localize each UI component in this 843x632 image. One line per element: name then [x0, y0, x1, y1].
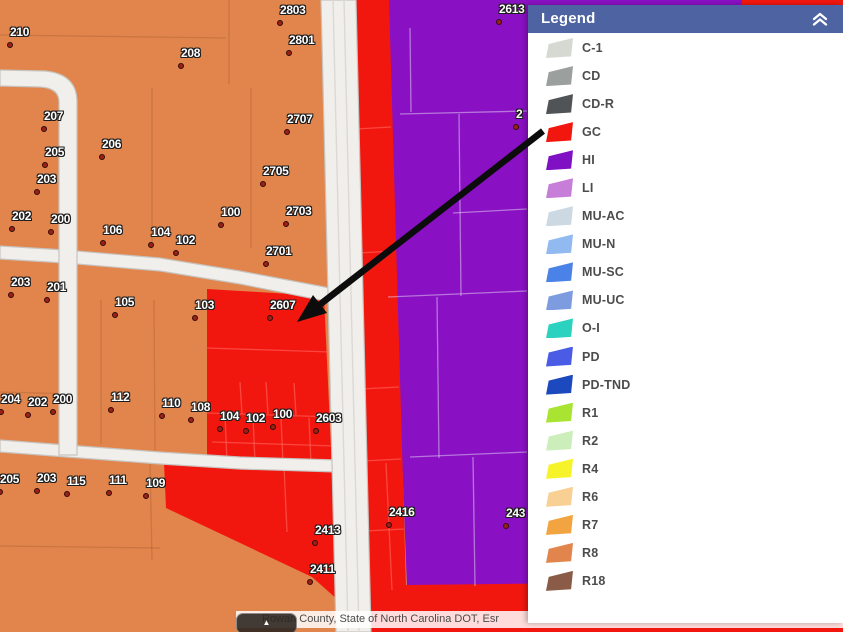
legend-item-label: R7: [582, 518, 598, 532]
chevron-double-up-icon: [814, 14, 826, 25]
legend-swatch: [546, 66, 573, 86]
legend-header: Legend: [528, 5, 843, 33]
legend-swatch: [546, 403, 573, 423]
legend-swatch: [546, 431, 573, 451]
legend-item: R8: [528, 539, 843, 567]
legend-item: R4: [528, 455, 843, 483]
legend-item: PD: [528, 343, 843, 371]
legend-list: C-1CDCD-RGCHILIMU-ACMU-NMU-SCMU-UCO-IPDP…: [528, 33, 843, 595]
legend-item-label: R2: [582, 434, 598, 448]
legend-swatch: [546, 178, 573, 198]
legend-item: R7: [528, 511, 843, 539]
legend-item-label: R1: [582, 406, 598, 420]
legend-swatch: [546, 571, 573, 591]
legend-item: R18: [528, 567, 843, 595]
legend-item-label: O-I: [582, 321, 600, 335]
legend-swatch: [546, 543, 573, 563]
legend-swatch: [546, 375, 573, 395]
legend-item: CD: [528, 62, 843, 90]
legend-swatch: [546, 150, 573, 170]
attribution-arrow-icon: ▲: [263, 618, 271, 627]
legend-item: HI: [528, 146, 843, 174]
legend-item-label: R6: [582, 490, 598, 504]
legend-item: MU-N: [528, 230, 843, 258]
legend-collapse-button[interactable]: [811, 12, 829, 26]
legend-item: CD-R: [528, 90, 843, 118]
legend-swatch: [546, 234, 573, 254]
legend-item-label: MU-SC: [582, 265, 624, 279]
attribution-expand-button[interactable]: ▲: [236, 613, 297, 632]
legend-title: Legend: [541, 10, 596, 27]
legend-item: PD-TND: [528, 371, 843, 399]
legend-item-label: GC: [582, 125, 601, 139]
legend-item-label: R4: [582, 462, 598, 476]
legend-swatch: [546, 459, 573, 479]
legend-item-label: LI: [582, 181, 594, 195]
legend-item-label: PD-TND: [582, 378, 630, 392]
legend-item-label: C-1: [582, 41, 603, 55]
legend-item-label: R8: [582, 546, 598, 560]
legend-item-label: PD: [582, 350, 600, 364]
legend-swatch: [546, 94, 573, 114]
legend-swatch: [546, 487, 573, 507]
legend-swatch: [546, 347, 573, 367]
legend-swatch: [546, 515, 573, 535]
legend-swatch: [546, 38, 573, 58]
legend-item: GC: [528, 118, 843, 146]
map-viewport: 2102082803280127072705207206205203202200…: [0, 0, 843, 632]
legend-item-label: CD-R: [582, 97, 614, 111]
legend-item: MU-AC: [528, 202, 843, 230]
legend-item: LI: [528, 174, 843, 202]
legend-swatch: [546, 318, 573, 338]
legend-swatch: [546, 206, 573, 226]
legend-swatch: [546, 290, 573, 310]
legend-item-label: MU-UC: [582, 293, 625, 307]
legend-item: R2: [528, 427, 843, 455]
legend-item-label: MU-N: [582, 237, 615, 251]
legend-item-label: MU-AC: [582, 209, 625, 223]
legend-item: MU-SC: [528, 258, 843, 286]
legend-item: C-1: [528, 34, 843, 62]
legend-panel: Legend C-1CDCD-RGCHILIMU-ACMU-NMU-SCMU-U…: [528, 5, 843, 623]
legend-item-label: HI: [582, 153, 595, 167]
legend-item-label: R18: [582, 574, 606, 588]
legend-swatch: [546, 122, 573, 142]
legend-item: R6: [528, 483, 843, 511]
legend-item: O-I: [528, 314, 843, 342]
legend-item: MU-UC: [528, 286, 843, 314]
legend-item-label: CD: [582, 69, 600, 83]
legend-item: R1: [528, 399, 843, 427]
legend-swatch: [546, 262, 573, 282]
